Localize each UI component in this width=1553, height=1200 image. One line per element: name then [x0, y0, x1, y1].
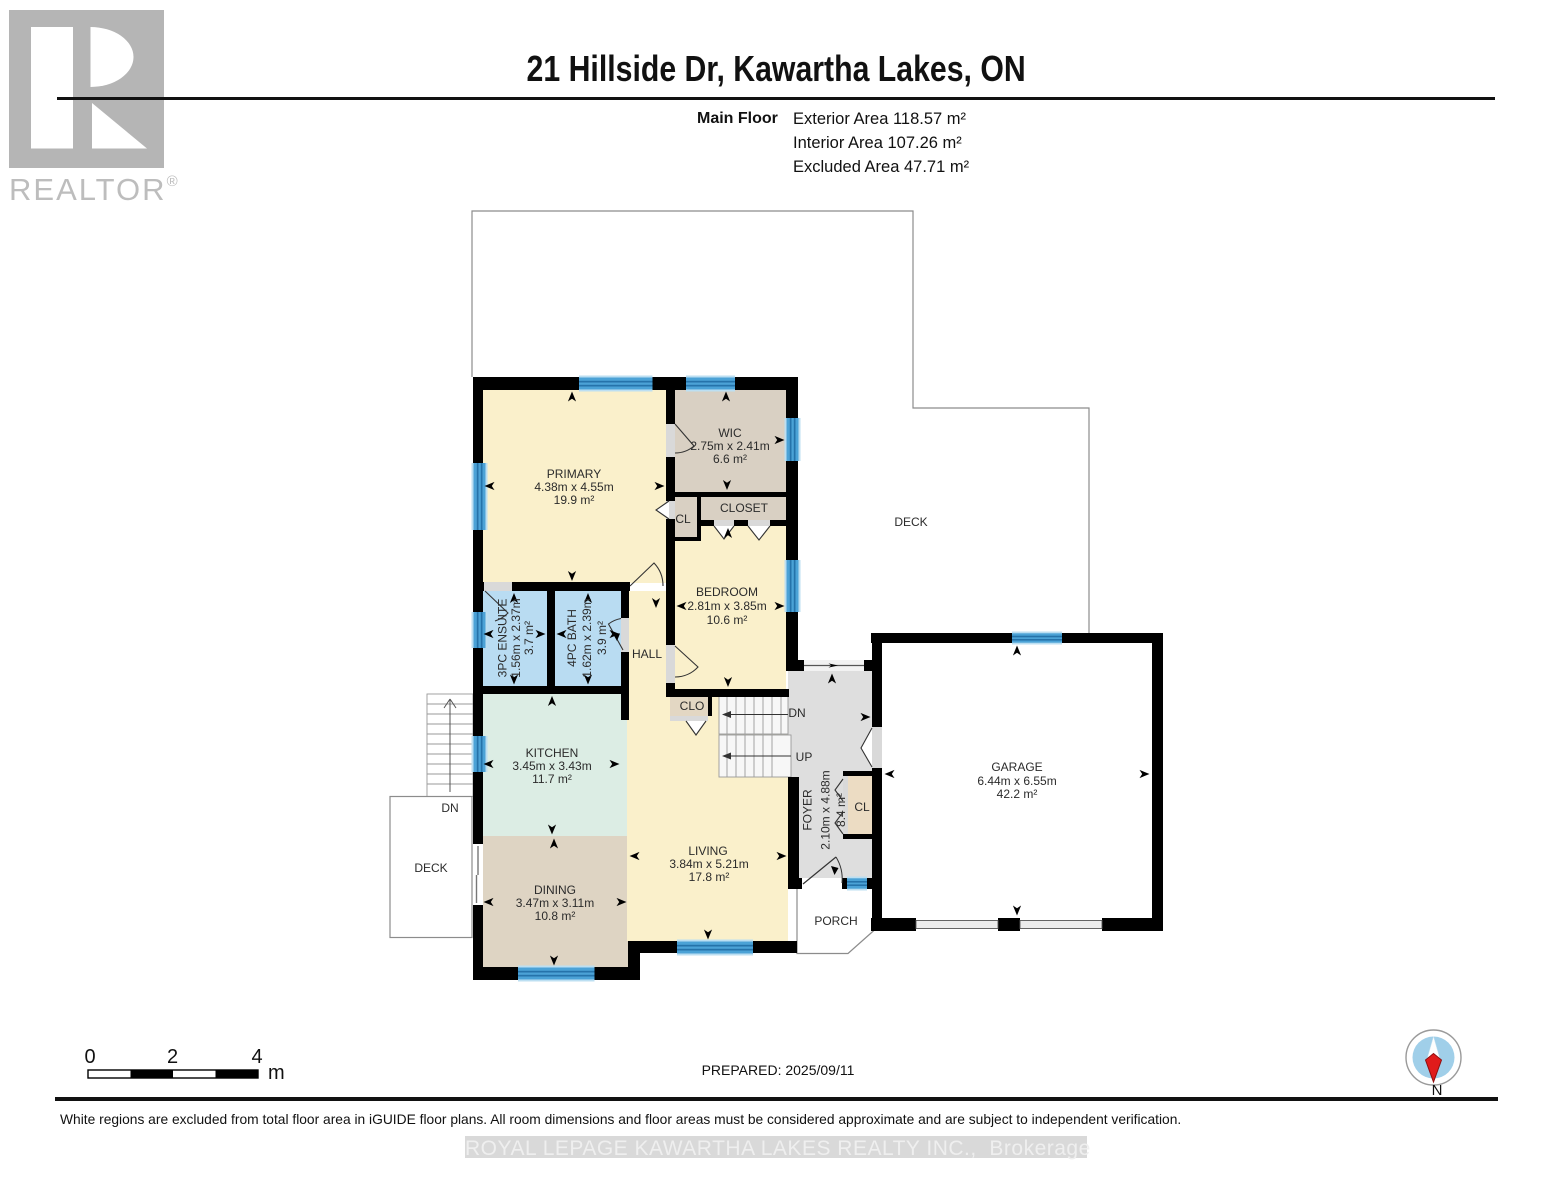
svg-text:PRIMARY: PRIMARY	[547, 467, 601, 481]
svg-text:4.38m x 4.55m: 4.38m x 4.55m	[534, 480, 613, 494]
svg-text:3.45m x 3.43m: 3.45m x 3.43m	[512, 759, 591, 773]
svg-text:HALL: HALL	[632, 647, 662, 661]
svg-text:6.44m x 6.55m: 6.44m x 6.55m	[977, 774, 1056, 788]
svg-text:0: 0	[84, 1046, 95, 1068]
svg-text:DINING: DINING	[534, 883, 576, 897]
svg-text:17.8 m²: 17.8 m²	[689, 870, 730, 884]
svg-text:DN: DN	[441, 801, 458, 815]
svg-text:LIVING: LIVING	[688, 844, 727, 858]
svg-text:2.10m x 4.88m: 2.10m x 4.88m	[819, 770, 833, 849]
svg-text:6.6 m²: 6.6 m²	[713, 452, 747, 466]
svg-text:KITCHEN: KITCHEN	[526, 746, 579, 760]
svg-text:10.8 m²: 10.8 m²	[535, 909, 576, 923]
svg-text:2.81m x 3.85m: 2.81m x 3.85m	[687, 599, 766, 613]
svg-text:PREPARED: 2025/09/11: PREPARED: 2025/09/11	[702, 1062, 855, 1078]
svg-text:FOYER: FOYER	[801, 789, 815, 831]
svg-text:8.4 m²: 8.4 m²	[834, 793, 848, 827]
svg-text:DN: DN	[788, 706, 805, 720]
svg-text:10.6 m²: 10.6 m²	[707, 613, 748, 627]
svg-text:CL: CL	[675, 512, 691, 526]
svg-text:CLO: CLO	[680, 699, 705, 713]
svg-text:CLOSET: CLOSET	[720, 501, 769, 515]
svg-text:3.7 m²: 3.7 m²	[522, 621, 536, 655]
svg-text:PORCH: PORCH	[814, 914, 857, 928]
svg-text:4: 4	[251, 1046, 262, 1068]
svg-text:2.75m x 2.41m: 2.75m x 2.41m	[690, 439, 769, 453]
svg-text:GARAGE: GARAGE	[991, 760, 1042, 774]
svg-text:CL: CL	[854, 800, 870, 814]
svg-text:1.62m x 2.39m: 1.62m x 2.39m	[580, 598, 594, 677]
svg-text:1.56m x 2.37m: 1.56m x 2.37m	[509, 598, 523, 677]
svg-text:4PC BATH: 4PC BATH	[565, 609, 579, 667]
svg-text:3.47m x 3.11m: 3.47m x 3.11m	[516, 896, 594, 910]
svg-text:3PC ENSUITE: 3PC ENSUITE	[496, 599, 510, 678]
svg-text:m: m	[268, 1062, 285, 1084]
svg-text:2: 2	[167, 1046, 178, 1068]
svg-text:11.7 m²: 11.7 m²	[532, 772, 572, 786]
svg-text:DECK: DECK	[894, 515, 927, 529]
svg-text:3.9 m²: 3.9 m²	[595, 621, 609, 655]
svg-text:42.2 m²: 42.2 m²	[997, 787, 1038, 801]
svg-text:WIC: WIC	[718, 426, 742, 440]
svg-text:19.9 m²: 19.9 m²	[554, 493, 595, 507]
svg-text:BEDROOM: BEDROOM	[696, 585, 758, 599]
svg-text:3.84m x 5.21m: 3.84m x 5.21m	[669, 857, 748, 871]
svg-text:UP: UP	[796, 750, 813, 764]
svg-text:DECK: DECK	[414, 861, 447, 875]
